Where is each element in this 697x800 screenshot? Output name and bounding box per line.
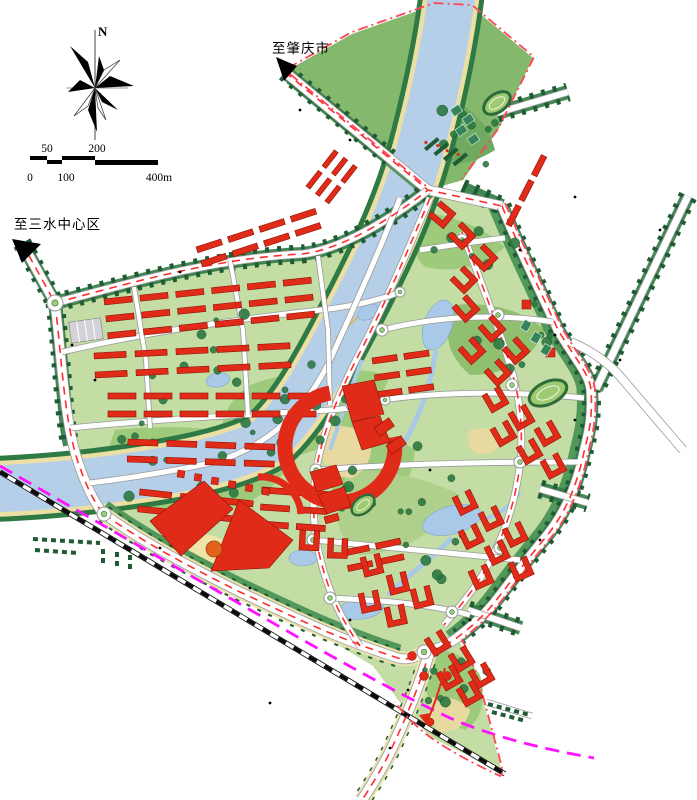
park-tree <box>250 430 255 435</box>
roundabout-island <box>421 649 427 655</box>
sanshui-label-text: 至三水中心区 <box>14 217 101 232</box>
plaza-dome <box>206 541 222 557</box>
slab-building <box>218 364 250 372</box>
park-tree <box>474 226 483 235</box>
roundabout-island <box>510 383 515 388</box>
park-tree <box>210 346 217 353</box>
scale-tick-400m: 400m <box>146 172 172 184</box>
park-tree <box>509 238 519 248</box>
park-tree <box>403 542 409 548</box>
road-stop-dot <box>94 379 97 382</box>
roundabout-island <box>328 596 333 601</box>
riverside-pavilion <box>245 484 253 492</box>
park-tree <box>348 466 357 475</box>
roundabout-island <box>383 398 387 402</box>
park-tree <box>232 378 241 387</box>
park-tree <box>241 418 251 428</box>
compass-north-label: N <box>98 24 108 39</box>
slab-building <box>180 393 208 399</box>
park-tree <box>218 451 227 460</box>
park-tree <box>437 105 448 116</box>
park-tree <box>406 509 412 515</box>
slab-building <box>245 443 275 450</box>
roundabout-island <box>450 610 455 615</box>
slab-building <box>180 411 208 417</box>
master-plan-map: N 50 200 0 100 400m 至肇庆市 至三水中心区 <box>0 0 697 800</box>
park-tree <box>413 442 422 451</box>
parking-lot <box>69 318 104 343</box>
slab-building <box>176 347 208 355</box>
slab-building <box>95 370 127 378</box>
park-tree <box>131 433 138 440</box>
slab-building <box>108 393 136 399</box>
riverside-pavilion <box>194 474 202 482</box>
road-stop-dot <box>659 229 662 232</box>
park-tree <box>440 697 450 707</box>
park-tree <box>491 119 498 126</box>
slab-building <box>167 440 197 447</box>
riverside-pavilion <box>228 481 236 489</box>
roundabout-island <box>380 328 385 333</box>
road-stop-dot <box>539 539 542 542</box>
scale-tick-0: 0 <box>27 172 33 184</box>
park-tree <box>532 302 537 307</box>
road-stop-dot <box>249 587 252 590</box>
park-tree <box>124 491 135 502</box>
park-tree <box>398 509 404 515</box>
master-plan-page: N 50 200 0 100 400m 至肇庆市 至三水中心区 <box>0 0 697 800</box>
zhaoqing-label-text: 至肇庆市 <box>272 40 330 56</box>
scale-tick-50: 50 <box>41 143 53 155</box>
slab-building <box>258 343 290 351</box>
park-tree <box>547 333 553 339</box>
road-stop-dot <box>349 619 352 622</box>
slab-building <box>244 460 274 467</box>
park-tree <box>197 330 206 339</box>
road-stop-dot <box>519 249 522 252</box>
roundabout-island <box>398 290 402 294</box>
slab-building <box>205 459 235 466</box>
road-stop-dot <box>389 747 392 750</box>
slab-building <box>216 411 244 417</box>
park-tree <box>452 538 459 545</box>
park-tree <box>425 697 432 704</box>
park-tree <box>431 246 438 253</box>
park-tree <box>421 555 431 565</box>
road-stop-dot <box>269 702 272 705</box>
slab-building <box>259 362 291 370</box>
park-tree <box>485 126 491 132</box>
riverside-pavilion <box>262 488 270 496</box>
slab-building <box>252 393 280 399</box>
slab-building <box>216 393 244 399</box>
park-tree <box>308 361 316 369</box>
road-stop-dot <box>349 139 352 142</box>
park-tree <box>118 435 126 443</box>
road-stop-dot <box>299 109 302 112</box>
slab-building <box>127 456 157 463</box>
park-tree <box>432 570 442 580</box>
slab-building <box>252 411 280 417</box>
slab-building <box>144 411 172 417</box>
slab-building <box>206 442 236 449</box>
park-tree <box>239 309 250 320</box>
scale-tick-200: 200 <box>88 143 106 155</box>
park-tree <box>316 436 325 445</box>
road-stop-dot <box>159 547 162 550</box>
roundabout-island <box>101 511 107 517</box>
park-tree <box>229 488 238 497</box>
riverside-pavilion <box>177 470 185 478</box>
slab-building <box>108 411 136 417</box>
slab-building <box>144 393 172 399</box>
park-tree <box>494 338 505 349</box>
park-tree <box>330 416 340 426</box>
road-stop-dot <box>554 334 557 337</box>
park-tree <box>430 668 437 675</box>
slab-building <box>217 345 249 353</box>
road-stop-dot <box>619 359 622 362</box>
roundabout-island <box>496 313 501 318</box>
slab-building <box>136 368 168 376</box>
slab-building <box>135 349 167 357</box>
slab-building <box>128 439 158 446</box>
road-stop-dot <box>71 344 74 347</box>
road-stop-dot <box>407 689 410 692</box>
riverside-pavilion <box>211 477 219 485</box>
slab-building <box>166 457 196 464</box>
park-tree <box>483 161 489 167</box>
road-stop-dot <box>429 469 432 472</box>
road-stop-dot <box>574 419 577 422</box>
park-tree <box>282 387 288 393</box>
scale-tick-100: 100 <box>57 172 75 184</box>
slab-building <box>94 351 126 359</box>
road-stop-dot <box>574 196 577 199</box>
park-tree <box>418 498 426 506</box>
roundabout-island <box>52 300 58 306</box>
park-tree <box>139 421 144 426</box>
road-stop-dot <box>469 619 472 622</box>
roundabout-island <box>518 460 523 465</box>
road-stop-dot <box>179 271 182 274</box>
slab-building <box>177 366 209 374</box>
park-tree <box>448 475 455 482</box>
park-tree <box>519 362 525 368</box>
